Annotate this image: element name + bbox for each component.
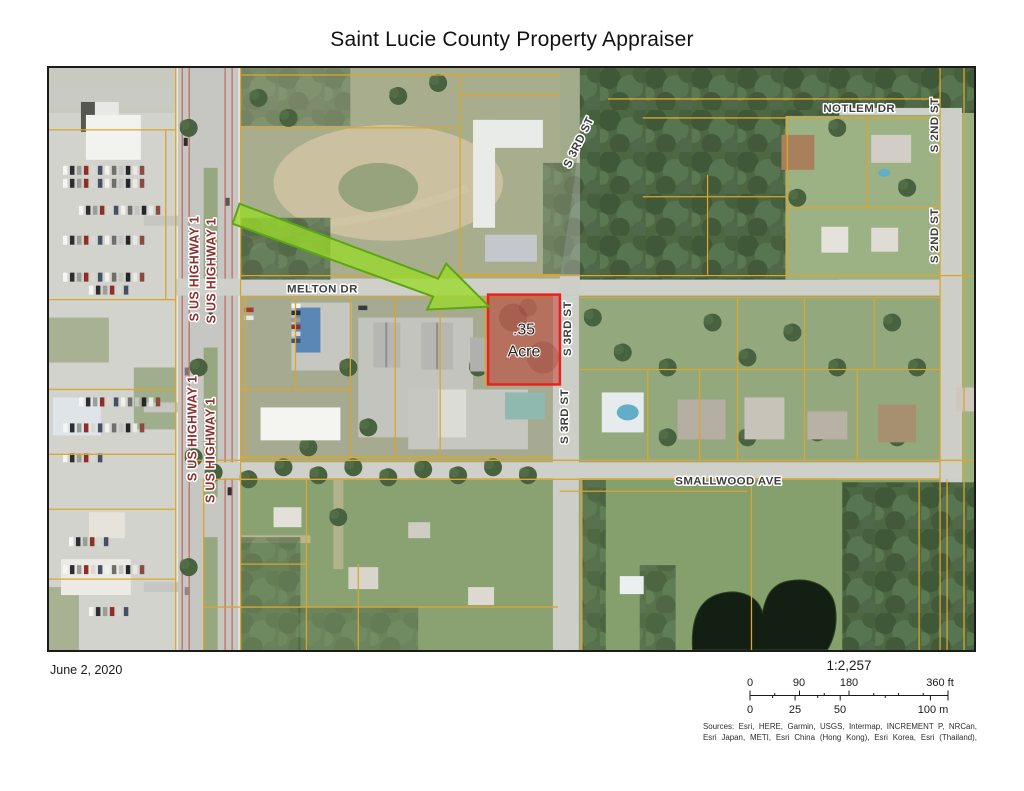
street-label-notlem-dr: NOTLEM DR — [823, 103, 895, 115]
smallwood-ave-road — [189, 462, 974, 478]
scale-ft-tick-90: 90 — [793, 677, 805, 689]
scalebar — [745, 690, 955, 702]
scale-ratio: 1:2,257 — [789, 658, 909, 673]
street-label-us-highway-2: S US HIGHWAY 1 — [205, 218, 219, 323]
sources-attribution: Sources: Esri, HERE, Garmin, USGS, Inter… — [703, 722, 977, 743]
street-label-s-2nd-st-1: S 2ND ST — [929, 97, 941, 152]
street-label-us-highway-1: S US HIGHWAY 1 — [188, 216, 202, 321]
page-title: Saint Lucie County Property Appraiser — [0, 28, 1024, 52]
street-label-s-3rd-st-3: S 3RD ST — [559, 389, 571, 444]
scale-ft-tick-0: 0 — [747, 677, 753, 689]
scale-ft-tick-360: 360 ft — [926, 677, 954, 689]
street-label-us-highway-3: S US HIGHWAY 1 — [186, 376, 200, 481]
scale-m-tick-0: 0 — [747, 704, 753, 716]
street-label-s-3rd-st-2: S 3RD ST — [562, 301, 574, 356]
map-date: June 2, 2020 — [50, 663, 122, 677]
scale-ft-tick-180: 180 — [840, 677, 858, 689]
street-label-smallwood-ave: SMALLWOOD AVE — [675, 475, 781, 487]
street-label-melton-dr: MELTON DR — [287, 284, 358, 296]
sources-line-2: Esri Japan, METI, Esri China (Hong Kong)… — [703, 733, 977, 744]
street-label-s-2nd-st-2: S 2ND ST — [929, 208, 941, 263]
scale-m-tick-50: 50 — [834, 704, 846, 716]
parcel-area-label-line2: Acre — [508, 344, 541, 361]
appraiser-report-page: Saint Lucie County Property Appraiser — [0, 0, 1024, 791]
parcel-highlight — [488, 295, 560, 385]
street-label-us-highway-4: S US HIGHWAY 1 — [204, 398, 218, 503]
sources-line-1: Sources: Esri, HERE, Garmin, USGS, Inter… — [703, 722, 977, 733]
aerial-map: S US HIGHWAY 1 S US HIGHWAY 1 S US HIGHW… — [49, 68, 974, 650]
map-frame: S US HIGHWAY 1 S US HIGHWAY 1 S US HIGHW… — [47, 66, 976, 652]
parcel-area-label-line1: .35 — [513, 322, 535, 339]
scale-m-tick-25: 25 — [789, 704, 801, 716]
scale-m-tick-100: 100 m — [918, 704, 949, 716]
